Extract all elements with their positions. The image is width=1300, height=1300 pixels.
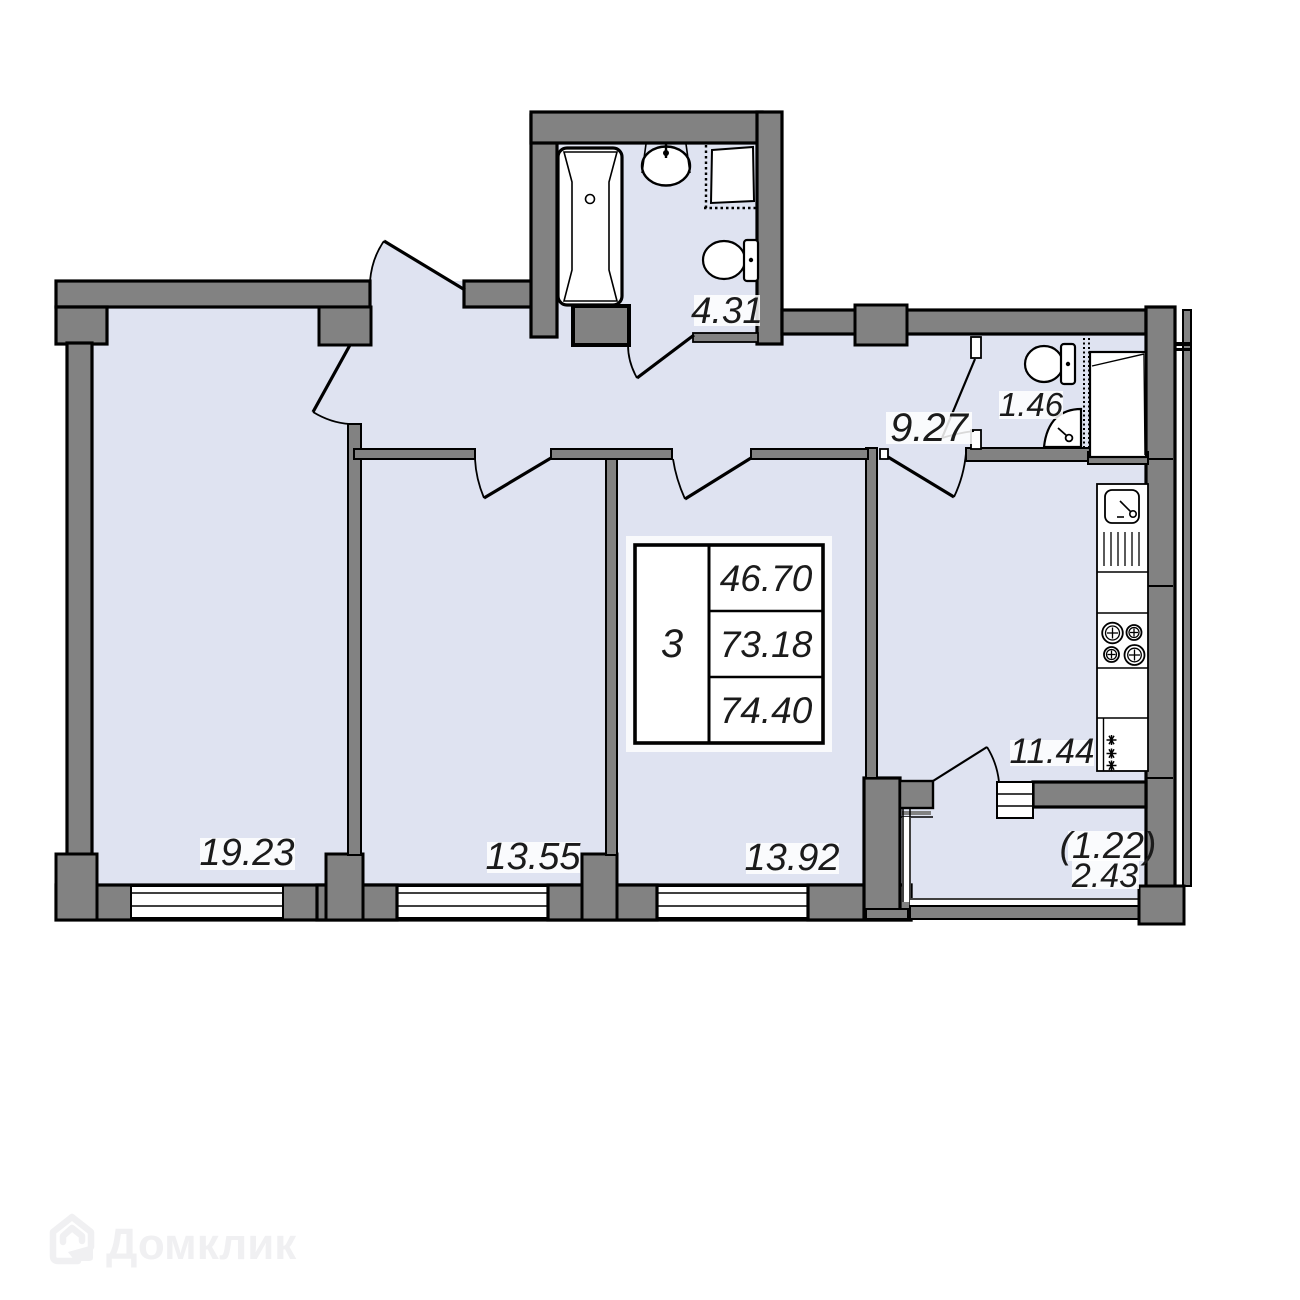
svg-text:73.18: 73.18 [720, 624, 813, 665]
svg-text:19.23: 19.23 [199, 832, 294, 874]
svg-text:11.44: 11.44 [1010, 732, 1095, 771]
svg-text:1.46: 1.46 [999, 386, 1064, 423]
svg-text:9.27: 9.27 [890, 406, 970, 450]
svg-text:13.55: 13.55 [485, 836, 581, 878]
svg-text:3: 3 [661, 622, 683, 666]
svg-text:4.31: 4.31 [691, 290, 763, 331]
svg-text:13.92: 13.92 [744, 837, 839, 879]
svg-text:74.40: 74.40 [720, 690, 813, 731]
svg-text:46.70: 46.70 [720, 558, 813, 599]
svg-text:2.43: 2.43 [1071, 857, 1138, 895]
svg-text:Домклик: Домклик [106, 1220, 297, 1269]
